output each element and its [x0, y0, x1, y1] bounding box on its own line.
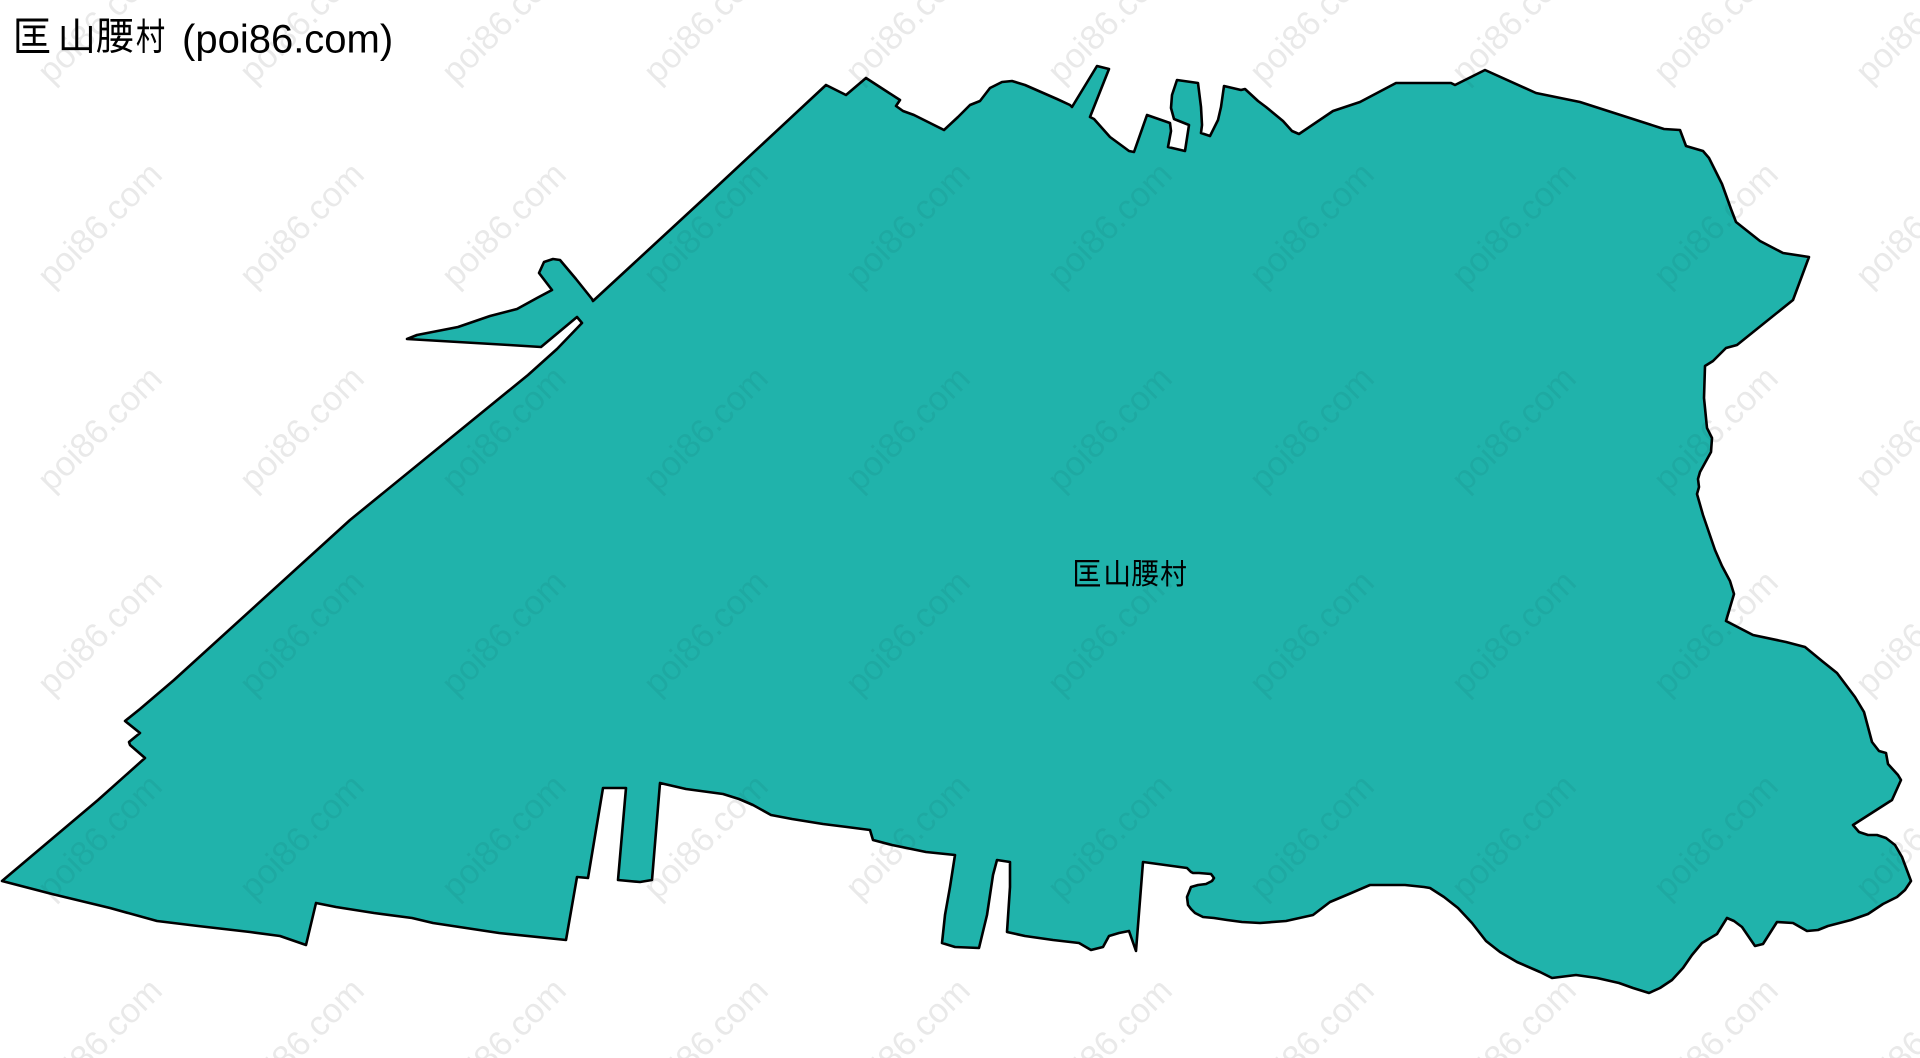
- svg-text:poi86.com: poi86.com: [1646, 0, 1785, 91]
- svg-text:poi86.com: poi86.com: [1040, 0, 1179, 91]
- svg-text:poi86.com: poi86.com: [434, 0, 573, 91]
- svg-text:poi86.com: poi86.com: [30, 155, 169, 294]
- svg-text:poi86.com: poi86.com: [1848, 155, 1920, 294]
- svg-text:poi86.com: poi86.com: [232, 971, 371, 1058]
- svg-text:poi86.com: poi86.com: [1848, 359, 1920, 498]
- svg-text:poi86.com: poi86.com: [1848, 971, 1920, 1058]
- svg-text:poi86.com: poi86.com: [1242, 0, 1381, 91]
- svg-text:poi86.com: poi86.com: [838, 0, 977, 91]
- svg-text:poi86.com: poi86.com: [1040, 971, 1179, 1058]
- svg-text:poi86.com: poi86.com: [232, 359, 371, 498]
- svg-text:poi86.com: poi86.com: [636, 0, 775, 91]
- svg-text:poi86.com: poi86.com: [838, 971, 977, 1058]
- svg-text:poi86.com: poi86.com: [1444, 971, 1583, 1058]
- svg-text:poi86.com: poi86.com: [30, 359, 169, 498]
- svg-text:poi86.com: poi86.com: [1444, 0, 1583, 91]
- svg-text:(poi86.com): (poi86.com): [182, 18, 393, 62]
- svg-text:poi86.com: poi86.com: [434, 971, 573, 1058]
- svg-text:poi86.com: poi86.com: [636, 971, 775, 1058]
- svg-text:poi86.com: poi86.com: [1242, 971, 1381, 1058]
- svg-text:poi86.com: poi86.com: [30, 563, 169, 702]
- svg-text:poi86.com: poi86.com: [232, 155, 371, 294]
- svg-text:poi86.com: poi86.com: [30, 971, 169, 1058]
- svg-text:poi86.com: poi86.com: [1848, 0, 1920, 91]
- svg-text:poi86.com: poi86.com: [1848, 563, 1920, 702]
